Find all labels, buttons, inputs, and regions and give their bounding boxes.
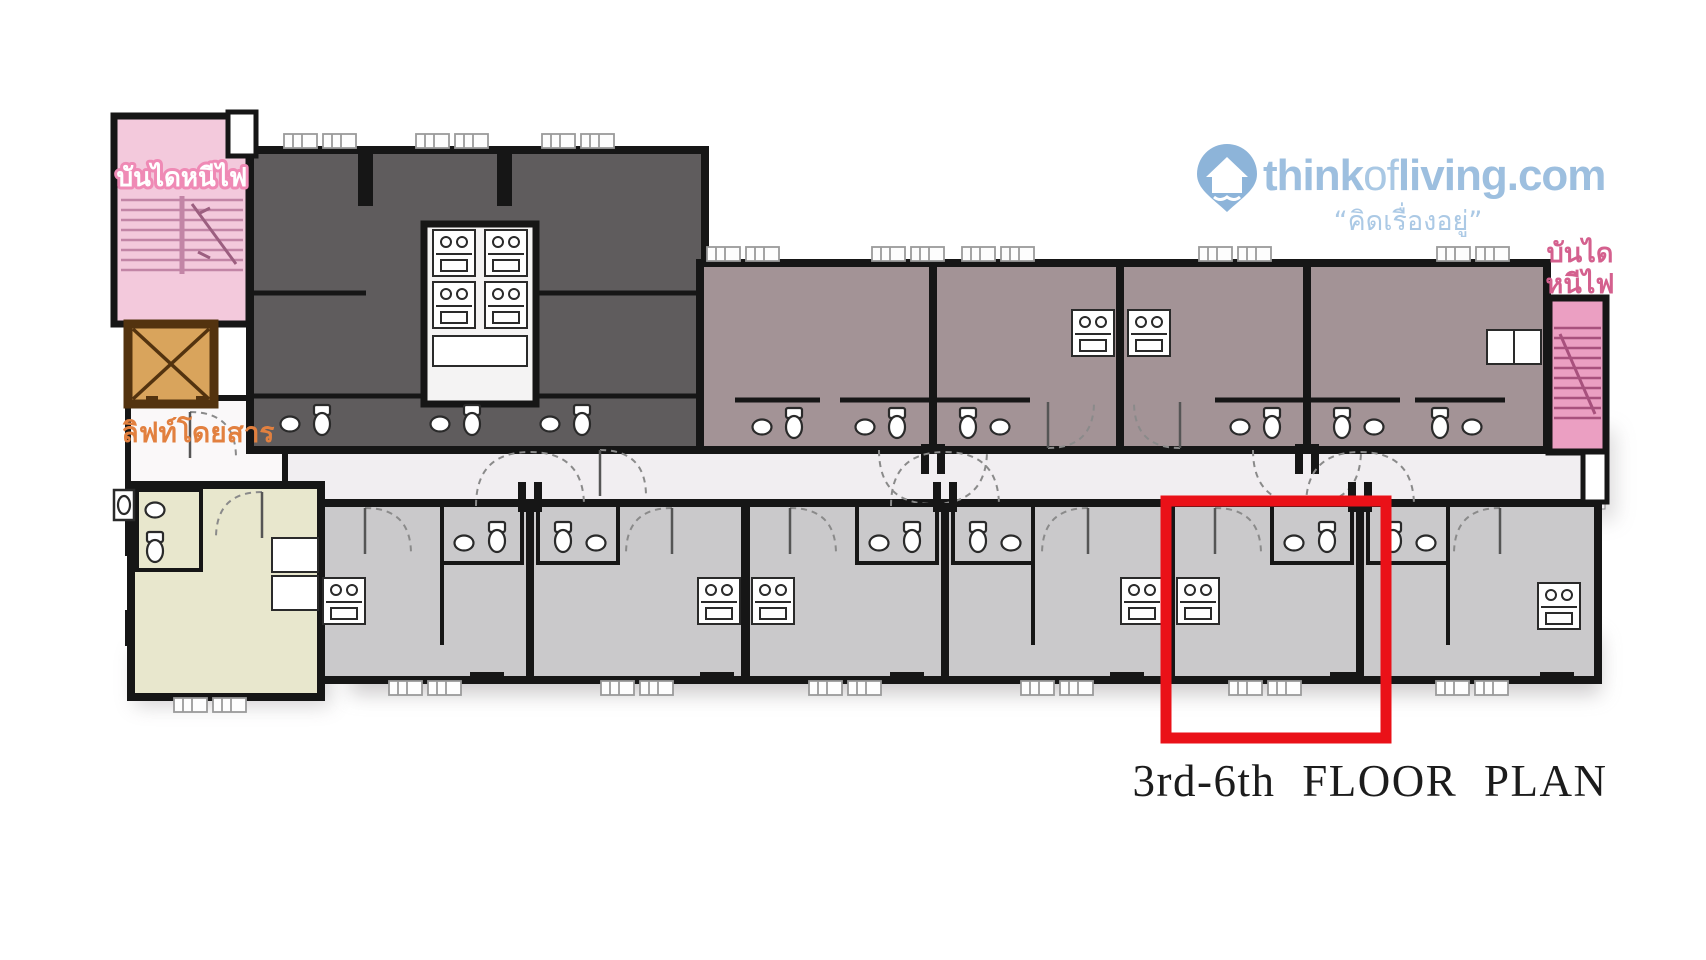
sink-icon (856, 420, 875, 435)
sink-icon (281, 417, 300, 432)
logo-text: thinkofliving.com (1263, 151, 1605, 200)
kitchen-unit (272, 538, 318, 572)
kitchen-unit (323, 578, 365, 624)
toilet-icon (786, 408, 802, 438)
balcony-marker (284, 134, 356, 148)
corridor-end-door (1583, 452, 1607, 502)
sink-icon (1365, 420, 1384, 435)
toilet-icon (1319, 522, 1335, 552)
kitchen-unit (272, 576, 318, 610)
toilet-icon (960, 408, 976, 438)
logo-pin-icon (1197, 144, 1257, 212)
logo-text-dotcom: .com (1507, 151, 1606, 200)
sink-icon (753, 420, 772, 435)
toilet-icon (147, 532, 163, 562)
sink-icon (1231, 420, 1250, 435)
balcony-marker (1437, 247, 1509, 261)
kitchen-unit (1538, 583, 1580, 629)
logo-text-think: think (1263, 151, 1365, 200)
kitchen-unit (1128, 310, 1170, 356)
fire-escape-stair-left (114, 112, 256, 324)
sink-icon (587, 536, 606, 551)
fire-escape-right-label-line2: หนีไฟ (1546, 268, 1615, 300)
kitchen-unit (1072, 310, 1114, 356)
toilet-icon (1334, 408, 1350, 438)
kitchen-unit (485, 230, 527, 276)
kitchen-unit (698, 578, 740, 624)
sink-icon (541, 417, 560, 432)
sink-icon (455, 536, 474, 551)
toilet-icon (904, 522, 920, 552)
toilet-icon (314, 405, 330, 435)
stair-tower-notch (228, 112, 256, 156)
elevator-label: ลิฟท์โดยสาร (122, 415, 275, 449)
floor-plan-canvas: บันไดหนีไฟ ลิฟท์โดยสาร บันได หนีไฟ think… (0, 0, 1706, 960)
toilet-icon (555, 522, 571, 552)
sink-icon (1417, 536, 1436, 551)
sink-icon (1002, 536, 1021, 551)
kitchen-counter (433, 336, 527, 366)
kitchen-unit (485, 282, 527, 328)
toilet-icon (970, 522, 986, 552)
balcony-marker (1199, 247, 1271, 261)
fire-escape-right-label-line1: บันได (1547, 237, 1614, 269)
toilet-icon (574, 405, 590, 435)
balcony-marker (416, 134, 488, 148)
balcony-marker (962, 247, 1034, 261)
balcony-marker (542, 134, 614, 148)
kitchen-unit (433, 282, 475, 328)
logo-text-of: of (1363, 151, 1399, 200)
sink-icon (1285, 536, 1304, 551)
sink-icon (991, 420, 1010, 435)
fire-escape-left-label: บันไดหนีไฟ (117, 161, 248, 193)
balcony-marker (707, 247, 779, 261)
bottom-row-gray-units (318, 503, 1598, 680)
toilet-icon (1264, 408, 1280, 438)
brand-logo: thinkofliving.com “คิดเรื่องอยู่” (1197, 144, 1605, 237)
balcony-marker (872, 247, 944, 261)
floor-plan-image: บันไดหนีไฟ ลิฟท์โดยสาร บันได หนีไฟ think… (0, 0, 1706, 960)
sink-icon (1463, 420, 1482, 435)
kitchen-unit (1177, 578, 1219, 624)
sink-icon (146, 503, 165, 518)
sink-icon (870, 536, 889, 551)
elevator-door-right (196, 396, 208, 406)
toilet-icon (889, 408, 905, 438)
logo-text-living: living (1398, 151, 1507, 200)
toilet-icon (464, 405, 480, 435)
kitchen-unit (752, 578, 794, 624)
floor-plan-title: 3rd-6th FLOOR PLAN (1132, 756, 1607, 806)
kitchen-unit (433, 230, 475, 276)
elevator-door-left (146, 396, 158, 406)
passenger-elevator (128, 324, 214, 406)
toilet-icon (489, 522, 505, 552)
sink-icon (431, 417, 450, 432)
kitchen-unit (1121, 578, 1163, 624)
logo-tagline: “คิดเรื่องอยู่” (1334, 202, 1483, 237)
toilet-icon (1432, 408, 1448, 438)
